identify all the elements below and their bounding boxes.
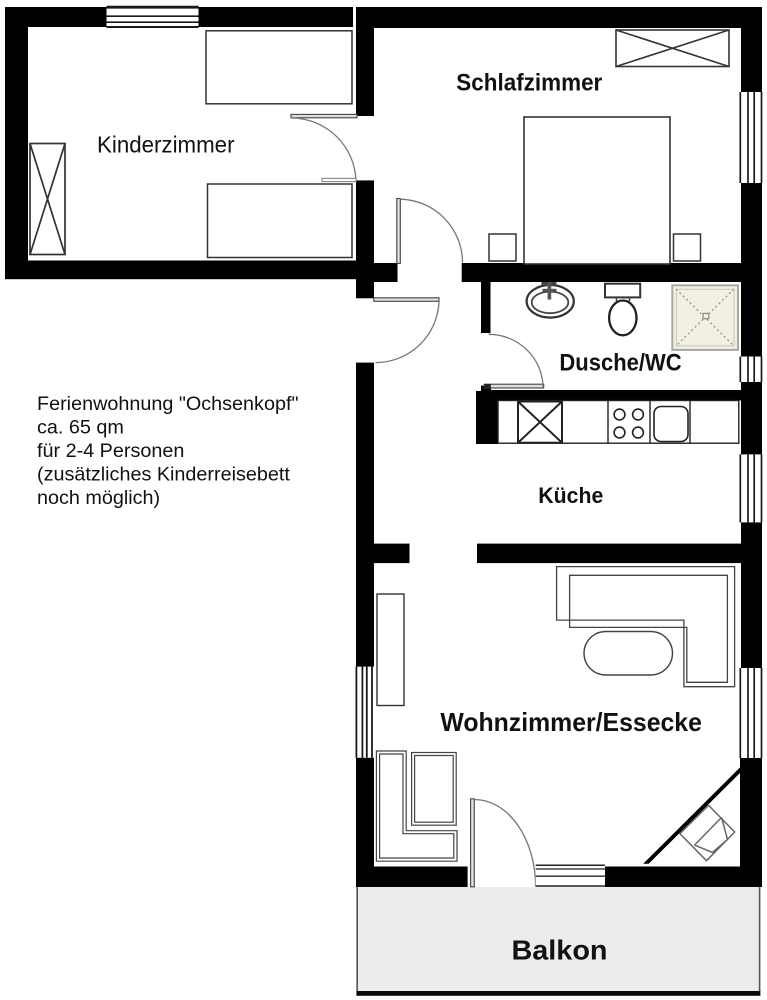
svg-text:(zusätzliches Kinderreisebett: (zusätzliches Kinderreisebett	[37, 463, 290, 485]
svg-text:für 2-4 Personen: für 2-4 Personen	[37, 440, 184, 462]
svg-text:Küche: Küche	[538, 483, 603, 508]
svg-text:Balkon: Balkon	[512, 935, 608, 966]
svg-text:ca. 65 qm: ca. 65 qm	[37, 416, 124, 438]
svg-text:Wohnzimmer/Essecke: Wohnzimmer/Essecke	[440, 707, 702, 737]
svg-text:Ferienwohnung "Ochsenkopf": Ferienwohnung "Ochsenkopf"	[37, 393, 298, 415]
svg-text:Dusche/WC: Dusche/WC	[559, 350, 681, 377]
svg-text:Schlafzimmer: Schlafzimmer	[456, 69, 602, 96]
svg-text:Kinderzimmer: Kinderzimmer	[97, 132, 235, 158]
svg-text:noch möglich): noch möglich)	[37, 487, 160, 509]
